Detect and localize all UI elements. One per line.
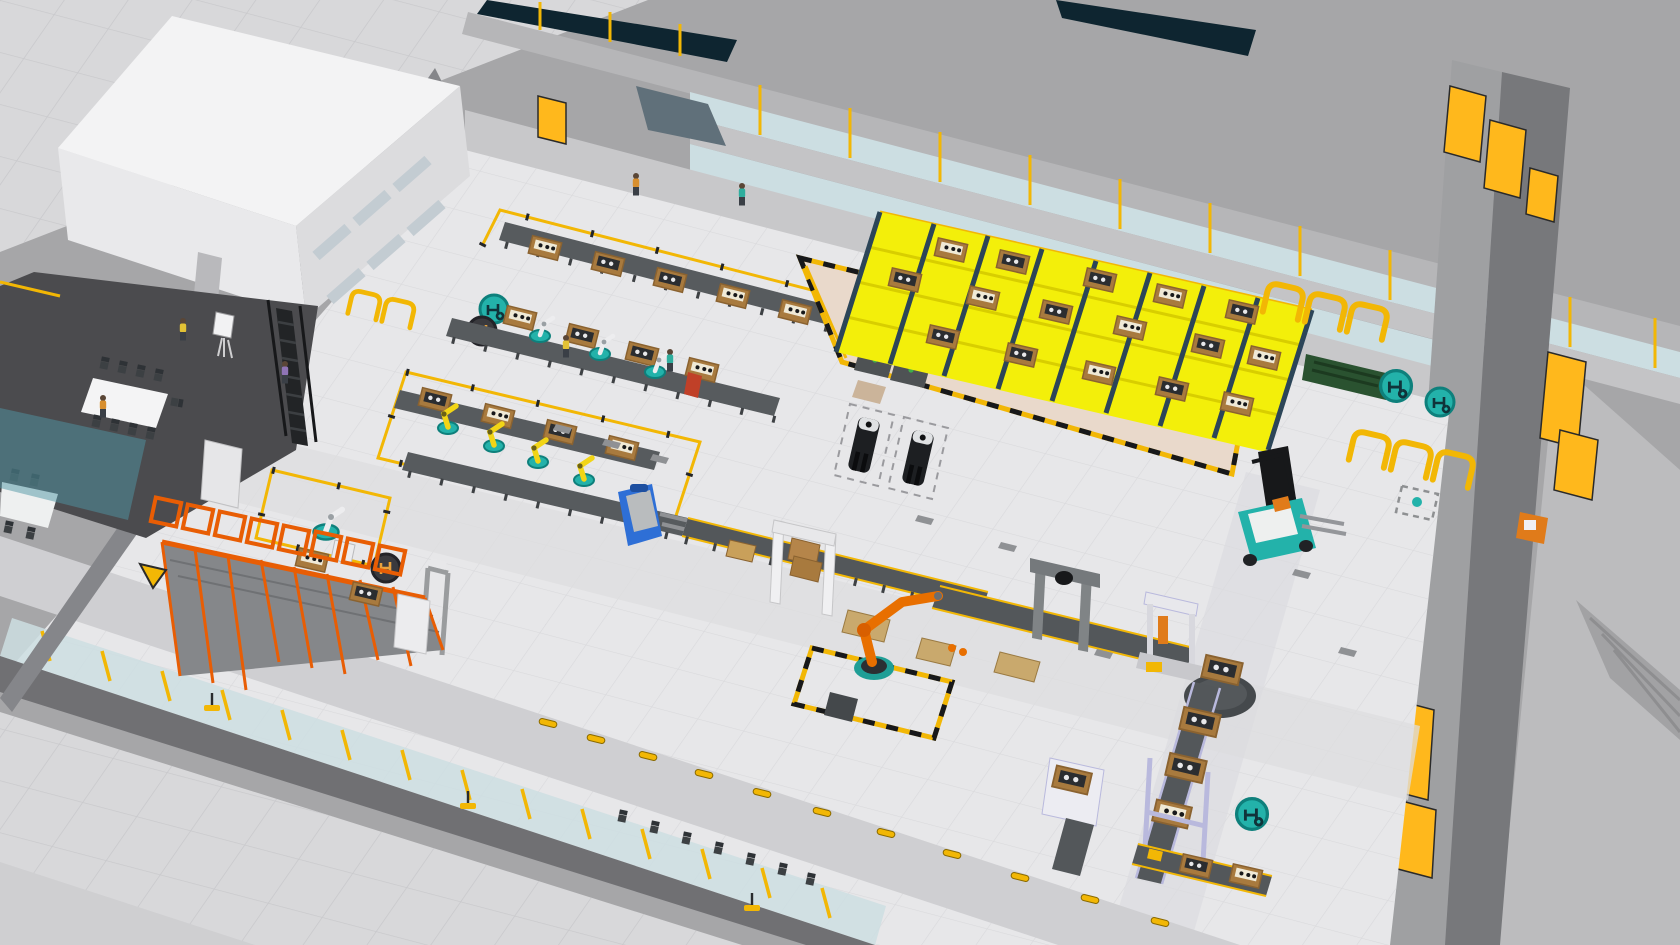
teal-floor-logo xyxy=(1237,799,1268,830)
worker[interactable] xyxy=(563,335,569,358)
teal-floor-logo xyxy=(1381,371,1412,402)
worker[interactable] xyxy=(667,349,673,372)
factory-3d-scene[interactable] xyxy=(0,0,1680,945)
teal-floor-logo xyxy=(1426,388,1454,416)
back-wall-door[interactable] xyxy=(538,96,566,144)
partition-panel xyxy=(201,440,242,508)
simulation-viewport[interactable] xyxy=(0,0,1680,945)
worker[interactable] xyxy=(633,173,639,196)
worker[interactable] xyxy=(180,318,186,341)
processing-machine[interactable] xyxy=(1042,758,1104,826)
worker[interactable] xyxy=(100,395,106,418)
white-machine[interactable] xyxy=(394,594,430,654)
worker[interactable] xyxy=(739,183,745,206)
worker[interactable] xyxy=(282,361,288,384)
